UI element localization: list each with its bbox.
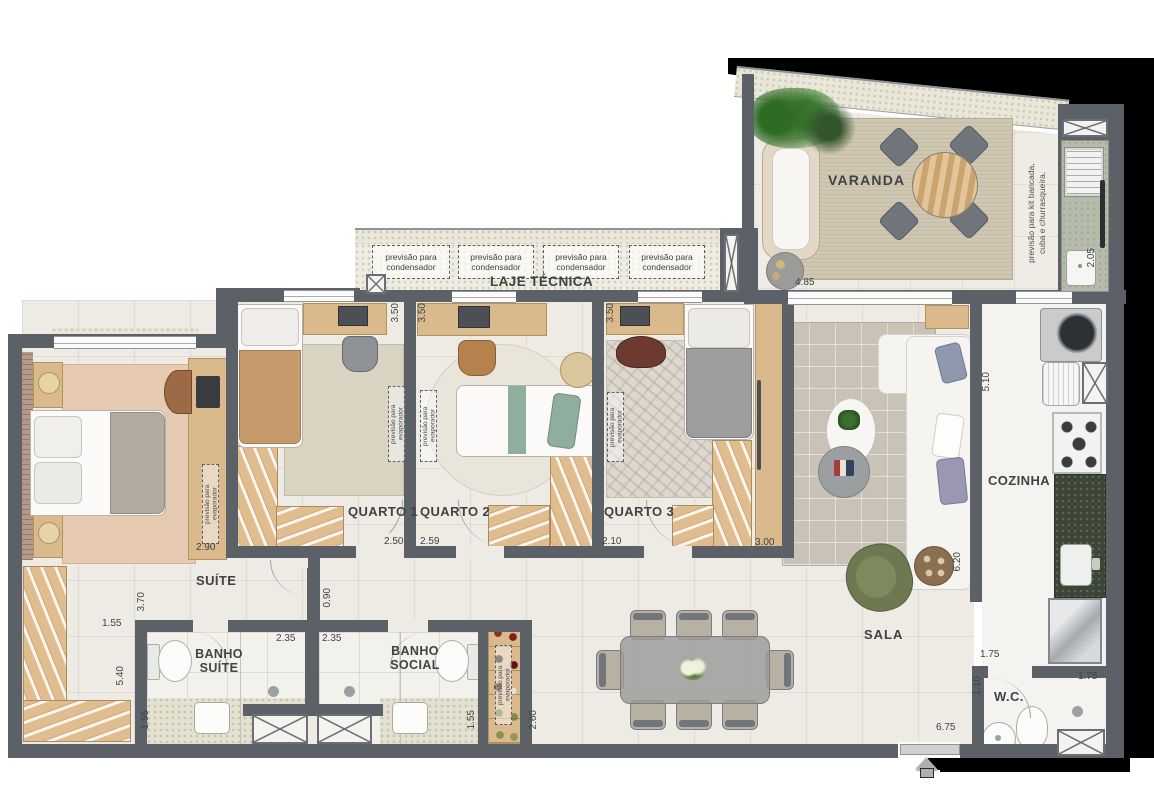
dim-sala-depth: 6.20 — [952, 552, 963, 571]
wall — [504, 546, 644, 558]
kitchen-sink-faucet — [1092, 558, 1100, 570]
condenser-note-line2: condensador — [471, 262, 520, 272]
dim-wc-width: 1.75 — [1078, 671, 1097, 682]
dim-quarto3-depth: 3.50 — [605, 303, 616, 322]
sala-side-table — [914, 546, 954, 586]
wall — [692, 546, 794, 558]
quarto1-desk-chair — [342, 336, 378, 372]
laundry-sink — [1042, 362, 1080, 406]
wall — [226, 546, 356, 558]
dim-suite-width: 2.90 — [196, 542, 215, 553]
quarto3-bed-blanket — [686, 348, 752, 438]
duct-shaft — [317, 714, 372, 744]
cooktop — [1052, 412, 1102, 474]
sala-sliding-door — [788, 291, 952, 305]
shower-box — [1057, 729, 1105, 756]
condenser-note-line2: condensador — [556, 262, 605, 272]
suite-lamp — [38, 372, 60, 394]
evaporator-note: previsão para evaporador — [420, 390, 437, 462]
dim-quarto3-closet: 3.00 — [755, 537, 774, 548]
wall — [404, 546, 456, 558]
evaporator-note: previsão para evaporador — [388, 386, 405, 462]
dim-wc-depth: 1.10 — [972, 676, 983, 695]
room-label-quarto3: QUARTO 3 — [604, 504, 674, 519]
wall — [592, 292, 604, 558]
entry-door-leaf — [900, 744, 960, 755]
banho-suite-line2: SUÍTE — [186, 661, 252, 675]
varanda-side-table-decor2 — [772, 272, 780, 280]
condenser-note-line2: condensador — [386, 262, 435, 272]
quarto3-desk-chair — [616, 336, 666, 368]
condenser-note-line2: condensador — [642, 262, 691, 272]
quarto1-bed-blanket — [239, 350, 301, 444]
quarto1-closet — [276, 506, 344, 548]
suite-bed-blanket — [110, 412, 165, 514]
washing-machine-door — [1056, 312, 1098, 354]
quarto2-closet — [550, 452, 597, 552]
dim-suite-depth: 3.70 — [136, 592, 147, 611]
barbecue-handle — [1100, 180, 1105, 248]
dim-quarto3-width: 2.10 — [602, 536, 621, 547]
barbecue-grill — [1065, 148, 1103, 196]
suite-closet — [23, 700, 131, 742]
roof-shadow-right — [1124, 128, 1154, 758]
quarto2-laptop — [458, 306, 490, 328]
wall — [782, 292, 794, 558]
plant-icon — [800, 102, 858, 154]
banho-suite-line1: BANHO — [186, 647, 252, 661]
suite-window — [54, 336, 196, 349]
dim-banho-social-width: 2.35 — [322, 633, 341, 644]
evaporator-note: previsão para evaporador — [495, 645, 512, 725]
dim-quarto2-depth: 3.50 — [417, 303, 428, 322]
suite-bed-pillow — [34, 416, 82, 458]
quarto3-closet — [712, 440, 752, 550]
sala-sofa-pillow — [936, 457, 969, 506]
room-label-quarto1: QUARTO 1 — [348, 504, 418, 519]
dim-quarto1-width: 2.50 — [384, 536, 403, 547]
room-label-cozinha: COZINHA — [988, 473, 1050, 488]
room-label-wc: W.C. — [994, 689, 1024, 704]
quarto2-door-gap — [456, 546, 504, 558]
quarto3-window — [638, 291, 702, 303]
quarto2-yarn-lamp — [560, 352, 596, 388]
evaporator-note: previsão para evaporador — [202, 464, 219, 544]
dining-chair — [722, 700, 758, 730]
banho-suite-door-gap — [193, 620, 228, 632]
duct-shaft — [366, 274, 386, 294]
duct-shaft — [1062, 119, 1108, 137]
room-label-varanda: VARANDA — [828, 172, 905, 188]
wall — [532, 744, 898, 758]
condenser-note-line1: previsão para — [385, 252, 437, 262]
bathroom-sink — [194, 702, 230, 734]
wall — [478, 620, 488, 758]
room-label-laje-tecnica: LAJE TÉCNICA — [490, 274, 593, 289]
dim-cozinha-depth: 5.10 — [981, 372, 992, 391]
wc-door-gap — [988, 666, 1032, 678]
refrigerator — [1048, 598, 1102, 664]
quarto1-laptop — [338, 306, 368, 326]
wall — [8, 744, 532, 758]
dining-centerpiece — [678, 656, 708, 680]
shower-head-icon — [344, 686, 355, 697]
dim-varanda-width: 4.85 — [795, 277, 814, 288]
varanda-side-table-decor — [776, 260, 785, 269]
varanda-sofa-cushion — [772, 148, 810, 250]
condenser-note-line1: previsão para — [641, 252, 693, 262]
quarto3-bed-pillow — [688, 308, 750, 348]
quarto1-closet — [236, 446, 278, 548]
wall — [226, 292, 238, 558]
quarto1-door-gap — [356, 546, 404, 558]
wall — [305, 620, 319, 712]
barbecue-sink-drain — [1078, 264, 1082, 268]
banho-social-line2: SOCIAL — [381, 658, 449, 672]
quarto2-bed-throw — [508, 386, 526, 454]
shower-head-icon — [268, 686, 279, 697]
suite-lamp — [38, 522, 60, 544]
sala-table-books — [834, 460, 854, 476]
wall — [135, 620, 147, 758]
sala-console — [925, 305, 969, 329]
banho-social-door-gap — [388, 620, 428, 632]
condenser-box: previsão para condensador — [629, 245, 705, 279]
wall — [742, 74, 754, 296]
dining-chair — [630, 700, 666, 730]
room-label-sala: SALA — [864, 627, 903, 642]
dim-banho-suite-depth: 1.55 — [140, 710, 151, 729]
wall — [307, 558, 320, 622]
dim-sala-width: 6.75 — [936, 722, 955, 733]
dining-chair — [676, 700, 712, 730]
room-label-suite: SUÍTE — [196, 573, 236, 588]
wall — [520, 620, 532, 758]
quarto3-door-gap — [644, 546, 692, 558]
suite-desk-chair — [164, 370, 192, 414]
quarto2-window — [452, 291, 516, 303]
condenser-note-line1: previsão para — [555, 252, 607, 262]
quarto1-window — [284, 290, 354, 302]
wall — [8, 334, 22, 758]
wall — [970, 300, 982, 602]
wc-sink-drain — [995, 735, 1001, 741]
suite-closet — [23, 566, 67, 702]
kit-bancada-note: previsão para kit bancada, cuba e churra… — [1026, 138, 1052, 288]
duct-shaft — [252, 714, 308, 744]
duct-shaft — [1082, 362, 1108, 404]
dim-banho-suite-width: 2.35 — [276, 633, 295, 644]
quarto2-desk-chair — [458, 340, 496, 376]
banho-social-line1: BANHO — [381, 644, 449, 658]
roof-shadow-entry — [940, 757, 1130, 772]
quarto3-wardrobe-handle — [757, 380, 761, 470]
dim-quarto1-depth: 3.50 — [390, 303, 401, 322]
condenser-note-line1: previsão para — [470, 252, 522, 262]
dim-suite-closet-depth: 5.40 — [115, 666, 126, 685]
bathroom-sink — [392, 702, 428, 734]
evaporator-note: previsão para evaporador — [607, 392, 624, 462]
dim-quarto2-width: 2.59 — [420, 536, 439, 547]
kitchen-sink — [1060, 544, 1092, 586]
kit-bancada-line2: cuba e churrasqueira. — [1037, 138, 1048, 288]
kit-bancada-line1: previsão para kit bancada, — [1026, 138, 1037, 288]
shower-head-icon — [1072, 706, 1083, 717]
suite-bed-pillow — [34, 462, 82, 504]
entry-arrow-stem — [921, 769, 933, 777]
dim-hall-width: 0.90 — [322, 588, 333, 607]
dim-suite-closet-width: 1.55 — [102, 618, 121, 629]
room-label-quarto2: QUARTO 2 — [420, 504, 490, 519]
room-label-banho-suite: BANHO SUÍTE — [186, 647, 252, 675]
wall — [1106, 288, 1124, 758]
dim-banho-social-depth: 1.55 — [466, 710, 477, 729]
kitchen-window — [1016, 291, 1072, 304]
dim-adega-depth: 2.60 — [528, 710, 539, 729]
floor-plan: previsão para condensador previsão para … — [0, 0, 1154, 800]
room-label-banho-social: BANHO SOCIAL — [381, 644, 449, 672]
varanda-dining-table — [912, 152, 978, 218]
quarto1-bed-pillow — [241, 308, 299, 346]
dim-cozinha-passage: 1.75 — [980, 649, 999, 660]
quarto3-laptop — [620, 306, 650, 326]
sala-coffee-table-plant — [838, 410, 860, 430]
suite-tv — [196, 376, 220, 408]
dim-varanda-depth: 2.05 — [1086, 248, 1097, 267]
dining-chair — [766, 650, 794, 690]
duct-shaft — [724, 234, 739, 292]
